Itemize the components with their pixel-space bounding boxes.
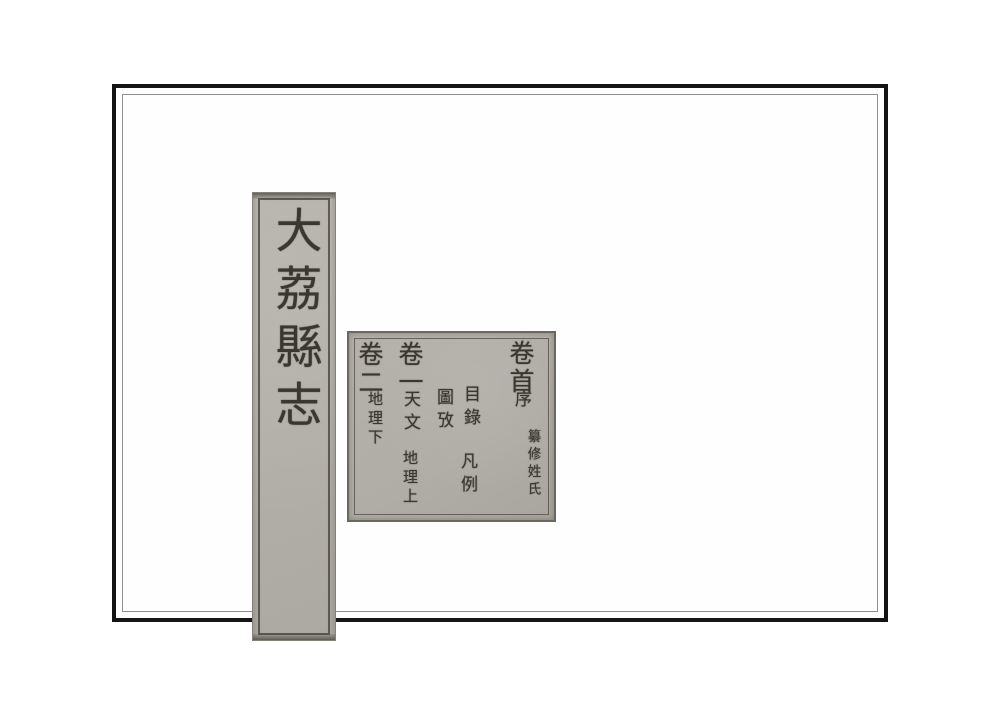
toc-item-preface: 序	[512, 390, 529, 407]
toc-volume-two-label: 卷二	[357, 341, 382, 397]
book-spine-label: 大荔縣志	[252, 192, 336, 641]
toc-item-geography-upper: 地理上	[402, 450, 417, 507]
toc-item-conventions: 凡例	[458, 452, 475, 498]
toc-volume-one-label: 卷一	[397, 341, 422, 397]
toc-item-geography-lower: 地理下	[367, 391, 382, 448]
toc-item-illustrations: 圖攷	[434, 388, 451, 434]
toc-item-compilers: 纂修姓氏	[525, 429, 539, 499]
toc-volume-head-label: 卷首	[508, 340, 533, 396]
table-of-contents-block: 卷首 序 纂修姓氏 目錄 凡例 圖攷 卷一 天文 地理上 卷二 地理下	[347, 331, 556, 522]
toc-item-contents: 目錄	[461, 385, 478, 431]
spine-title: 大荔縣志	[271, 206, 318, 438]
toc-item-astronomy: 天文	[401, 390, 418, 436]
scan-border-frame: 大荔縣志 卷首 序 纂修姓氏 目錄 凡例 圖攷 卷一 天文 地理上 卷二 地理下	[112, 84, 888, 622]
